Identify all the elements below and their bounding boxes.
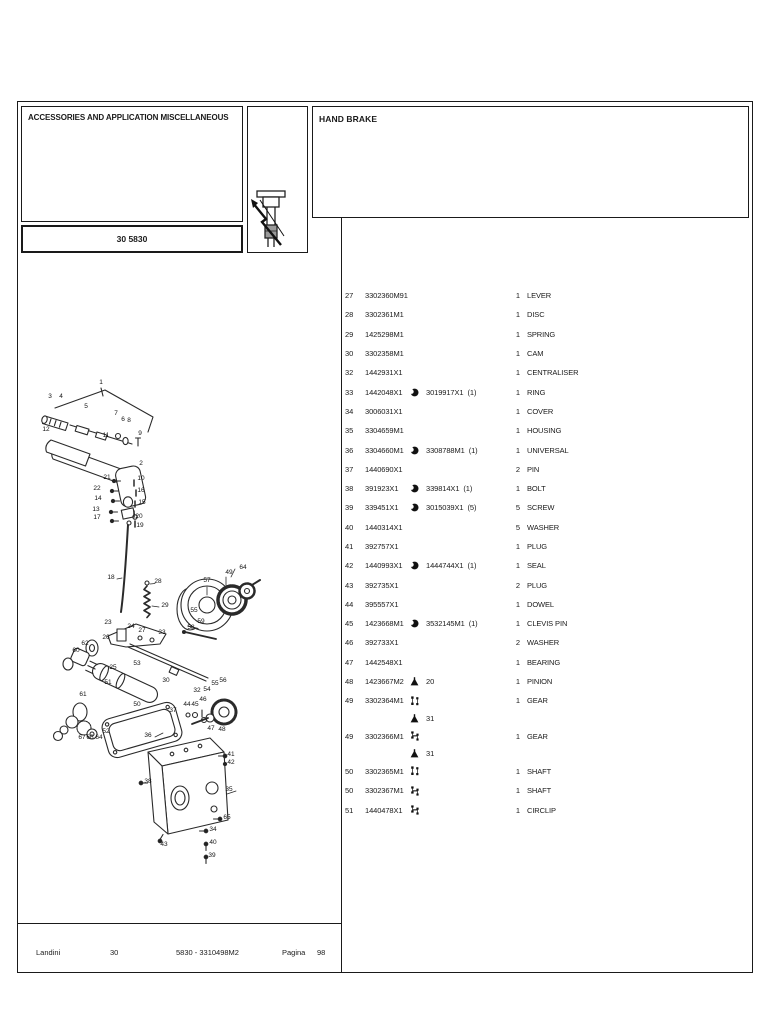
part-row: 28 3302361M1 1 DISC [345, 305, 750, 324]
part-ref: 48 [345, 677, 365, 686]
marker-slot [410, 484, 426, 493]
part-description: GEAR [527, 696, 548, 705]
part-ref: 27 [345, 291, 365, 300]
part-row: 46 392733X1 2 WASHER [345, 633, 750, 652]
diagram-callout-50: 50 [133, 701, 141, 708]
diagram-callout-12: 12 [42, 426, 50, 433]
alt-part-number: 3532145M1 [426, 619, 465, 628]
part-qty: 1 [510, 561, 520, 570]
part-qty: 1 [510, 388, 520, 397]
part-qty: 2 [510, 465, 520, 474]
alt-part-qty: (5) [467, 503, 476, 512]
teeth-count-icon [410, 749, 419, 758]
diagram-callout-8: 8 [127, 417, 131, 424]
part-description: SEAL [527, 561, 546, 570]
alt-part-slot: 20 [426, 677, 510, 686]
footer-divider [17, 923, 341, 924]
part-row: 39 339451X1 3015039X1 (5) 5 SCREW [345, 498, 750, 517]
alt-part-number: 339814X1 [426, 484, 459, 493]
footer-page-number: 98 [317, 948, 325, 957]
part-row: 41 392757X1 1 PLUG [345, 537, 750, 556]
alt-part-qty: (1) [469, 446, 478, 455]
diagram-callout-42: 42 [227, 759, 235, 766]
part-row: 42 1440993X1 1444744X1 (1) 1 SEAL [345, 556, 750, 575]
part-description: UNIVERSAL [527, 446, 569, 455]
diagram-callout-66: 66 [86, 734, 94, 741]
part-number: 1440690X1 [365, 465, 410, 474]
marker-slot [410, 714, 426, 723]
diagram-callout-10: 10 [137, 475, 145, 482]
serial-break-first-icon [410, 766, 420, 776]
part-number: 1440993X1 [365, 561, 410, 570]
part-qty: 1 [510, 330, 520, 339]
panel-divider [341, 217, 342, 973]
diagram-callout-24: 24 [127, 623, 135, 630]
part-ref: 50 [345, 767, 365, 776]
part-description: CAM [527, 349, 543, 358]
part-qty: 1 [510, 767, 520, 776]
footer-model-code: 5830 - 3310498M2 [176, 948, 239, 957]
part-number: 3302361M1 [365, 310, 410, 319]
part-row: 37 1440690X1 2 PIN [345, 460, 750, 479]
parts-list: 27 3302360M91 1 LEVER 28 3302361M1 1 DIS… [345, 286, 750, 820]
diagram-callout-11: 11 [103, 432, 110, 439]
superseded-part-icon [410, 619, 419, 628]
part-number: 3302367M1 [365, 786, 410, 795]
alt-part-number: 31 [426, 714, 434, 723]
part-row: 32 1442931X1 1 CENTRALISER [345, 363, 750, 382]
part-qty: 2 [510, 638, 520, 647]
diagram-callout-53: 53 [133, 660, 141, 667]
part-number: 339451X1 [365, 503, 410, 512]
diagram-callout-52: 52 [102, 728, 110, 735]
diagram-callout-15: 15 [138, 499, 146, 506]
part-description: PIN [527, 465, 539, 474]
superseded-part-icon [410, 446, 419, 455]
diagram-callout-40: 40 [209, 839, 217, 846]
part-description: LEVER [527, 291, 551, 300]
part-qty: 1 [510, 806, 520, 815]
part-qty: 5 [510, 523, 520, 532]
assembly-title: HAND BRAKE [319, 114, 377, 124]
part-qty: 1 [510, 291, 520, 300]
diagram-callout-34: 34 [209, 826, 217, 833]
part-qty: 1 [510, 542, 520, 551]
part-description: SHAFT [527, 786, 551, 795]
part-row: 40 1440314X1 5 WASHER [345, 518, 750, 537]
diagram-callout-23: 23 [104, 619, 112, 626]
marker-slot [410, 446, 426, 455]
diagram-callout-32: 32 [193, 687, 201, 694]
marker-slot [410, 749, 426, 758]
diagram-callout-28: 28 [154, 578, 162, 585]
part-description: WASHER [527, 638, 559, 647]
alt-part-slot: 31 [426, 714, 510, 723]
diagram-callout-14: 14 [94, 495, 102, 502]
part-number: 3302365M1 [365, 767, 410, 776]
footer-section: 30 [110, 948, 118, 957]
part-ref: 35 [345, 426, 365, 435]
diagram-callout-48: 48 [218, 726, 226, 733]
part-ref: 49 [345, 696, 365, 705]
diagram-callout-55: 55 [211, 680, 219, 687]
diagram-callout-46: 46 [199, 696, 207, 703]
diagram-callout-2: 2 [139, 460, 143, 467]
left-title-box: ACCESSORIES AND APPLICATION MISCELLANEOU… [21, 106, 243, 222]
part-row: 51 1440478X1 1 CIRCLIP [345, 800, 750, 819]
part-ref: 49 [345, 732, 365, 741]
part-row: 29 1425298M1 1 SPRING [345, 325, 750, 344]
part-description: PLUG [527, 581, 547, 590]
superseded-part-icon [410, 561, 419, 570]
part-ref: 43 [345, 581, 365, 590]
marker-slot [410, 766, 426, 776]
part-description: GEAR [527, 732, 548, 741]
diagram-callout-67: 67 [78, 734, 86, 741]
diagram-callout-61: 61 [79, 691, 87, 698]
alt-part-qty: (1) [463, 484, 472, 493]
alt-part-qty: (1) [469, 619, 478, 628]
part-number: 391923X1 [365, 484, 410, 493]
part-qty: 2 [510, 581, 520, 590]
part-row: 38 391923X1 339814X1 (1) 1 BOLT [345, 479, 750, 498]
pictogram-box [247, 106, 308, 253]
marker-slot [410, 696, 426, 706]
part-number: 3302364M1 [365, 696, 410, 705]
part-row: 33 1442048X1 3019917X1 (1) 1 RING [345, 382, 750, 401]
footer-brand: Landini [36, 948, 60, 957]
diagram-callout-56: 56 [219, 677, 227, 684]
diagram-callout-64: 64 [95, 734, 103, 741]
part-description: CENTRALISER [527, 368, 578, 377]
part-ref: 30 [345, 349, 365, 358]
marker-slot [410, 677, 426, 686]
diagram-callout-22: 22 [93, 485, 101, 492]
part-row: 45 1423668M1 3532145M1 (1) 1 CLEVIS PIN [345, 614, 750, 633]
marker-slot [410, 619, 426, 628]
marker-slot [410, 503, 426, 512]
part-ref: 42 [345, 561, 365, 570]
part-number: 1442548X1 [365, 658, 410, 667]
diagram-callout-37: 37 [169, 707, 177, 714]
part-qty: 1 [510, 696, 520, 705]
part-qty: 1 [510, 426, 520, 435]
part-ref: 32 [345, 368, 365, 377]
marker-slot [410, 805, 426, 815]
diagram-callout-47: 47 [207, 725, 215, 732]
alt-part-number: 20 [426, 677, 434, 686]
part-description: RING [527, 388, 545, 397]
page-title: ACCESSORIES AND APPLICATION MISCELLANEOU… [28, 113, 229, 122]
part-description: BOLT [527, 484, 546, 493]
alt-part-slot: 31 [426, 749, 510, 758]
diagram-callout-1: 1 [99, 379, 103, 386]
part-description: SCREW [527, 503, 554, 512]
part-number: 3304660M1 [365, 446, 410, 455]
part-row: 43 392735X1 2 PLUG [345, 575, 750, 594]
hand-brake-knob-icon [248, 107, 305, 250]
diagram-callout-21: 21 [103, 474, 111, 481]
diagram-callout-6: 6 [121, 416, 125, 423]
part-qty: 1 [510, 600, 520, 609]
teeth-count-icon [410, 677, 419, 686]
exploded-diagram: 1345768912112211022161415132017191828295… [20, 260, 340, 920]
part-qty: 1 [510, 407, 520, 416]
alt-part-slot: 3015039X1 (5) [426, 503, 510, 512]
part-row: 31 [345, 711, 750, 727]
part-ref: 36 [345, 446, 365, 455]
part-description: COVER [527, 407, 553, 416]
diagram-callout-55: 55 [190, 607, 198, 614]
part-qty: 1 [510, 619, 520, 628]
serial-break-second-icon [410, 786, 420, 796]
diagram-callout-17: 17 [93, 514, 101, 521]
part-ref: 51 [345, 806, 365, 815]
diagram-callout-59: 59 [197, 618, 205, 625]
part-number: 3302358M1 [365, 349, 410, 358]
diagram-callout-7: 7 [114, 410, 118, 417]
part-number: 1440314X1 [365, 523, 410, 532]
alt-part-number: 3019917X1 [426, 388, 463, 397]
diagram-callout-26: 26 [102, 634, 110, 641]
part-number: 1425298M1 [365, 330, 410, 339]
part-row: 30 3302358M1 1 CAM [345, 344, 750, 363]
alt-part-slot: 3532145M1 (1) [426, 619, 510, 628]
part-number: 1442048X1 [365, 388, 410, 397]
superseded-part-icon [410, 484, 419, 493]
diagram-callout-19: 19 [136, 522, 144, 529]
part-row: 49 3302364M1 1 GEAR [345, 691, 750, 710]
diagram-callout-18: 18 [107, 574, 115, 581]
part-description: PLUG [527, 542, 547, 551]
part-number: 1423667M2 [365, 677, 410, 686]
part-description: HOUSING [527, 426, 561, 435]
right-title-box: HAND BRAKE [312, 106, 749, 218]
alt-part-number: 3015039X1 [426, 503, 463, 512]
diagram-callout-51: 51 [104, 679, 112, 686]
part-ref: 39 [345, 503, 365, 512]
diagram-callout-45: 45 [191, 701, 199, 708]
alt-part-qty: (1) [467, 388, 476, 397]
alt-part-slot: 3019917X1 (1) [426, 388, 510, 397]
part-number: 3006031X1 [365, 407, 410, 416]
diagram-callout-54: 54 [203, 686, 211, 693]
part-row: 44 395557X1 1 DOWEL [345, 595, 750, 614]
superseded-part-icon [410, 503, 419, 512]
diagram-callout-39: 39 [208, 852, 216, 859]
part-description: WASHER [527, 523, 559, 532]
part-qty: 1 [510, 786, 520, 795]
part-number: 392733X1 [365, 638, 410, 647]
part-description: BEARING [527, 658, 560, 667]
part-description: DOWEL [527, 600, 554, 609]
part-description: SPRING [527, 330, 555, 339]
part-row: 48 1423667M2 20 1 PINION [345, 672, 750, 691]
section-code: 30 5830 [23, 234, 241, 244]
part-number: 1440478X1 [365, 806, 410, 815]
alt-part-slot: 3308788M1 (1) [426, 446, 510, 455]
alt-part-number: 31 [426, 749, 434, 758]
diagram-callout-43: 43 [160, 841, 168, 848]
part-row: 47 1442548X1 1 BEARING [345, 653, 750, 672]
diagram-callout-33: 33 [158, 629, 166, 636]
part-ref: 46 [345, 638, 365, 647]
part-row: 27 3302360M91 1 LEVER [345, 286, 750, 305]
diagram-callout-62: 62 [81, 640, 89, 647]
alt-part-slot: 1444744X1 (1) [426, 561, 510, 570]
part-ref: 28 [345, 310, 365, 319]
part-row: 49 3302366M1 1 GEAR [345, 727, 750, 746]
part-row: 50 3302367M1 1 SHAFT [345, 781, 750, 800]
diagram-callout-65: 65 [223, 814, 231, 821]
part-row: 50 3302365M1 1 SHAFT [345, 762, 750, 781]
part-ref: 40 [345, 523, 365, 532]
diagram-callout-49: 49 [225, 569, 233, 576]
part-number: 3302360M91 [365, 291, 410, 300]
part-number: 395557X1 [365, 600, 410, 609]
alt-part-number: 3308788M1 [426, 446, 465, 455]
diagram-callout-60: 60 [72, 647, 80, 654]
part-qty: 1 [510, 732, 520, 741]
part-row: 35 3304659M1 1 HOUSING [345, 421, 750, 440]
part-qty: 5 [510, 503, 520, 512]
part-description: SHAFT [527, 767, 551, 776]
part-ref: 33 [345, 388, 365, 397]
part-row: 31 [345, 746, 750, 762]
part-number: 3302366M1 [365, 732, 410, 741]
diagram-callout-27: 27 [138, 627, 146, 634]
part-ref: 34 [345, 407, 365, 416]
teeth-count-icon [410, 714, 419, 723]
serial-break-first-icon [410, 696, 420, 706]
diagram-callout-13: 13 [92, 506, 100, 513]
footer-page-label: Pagina [282, 948, 305, 957]
diagram-callout-57: 57 [203, 577, 211, 584]
part-ref: 37 [345, 465, 365, 474]
diagram-callout-20: 20 [135, 513, 143, 520]
serial-break-second-icon [410, 731, 420, 741]
part-qty: 1 [510, 677, 520, 686]
diagram-callout-3: 3 [48, 393, 52, 400]
diagram-callout-9: 9 [138, 430, 142, 437]
part-qty: 1 [510, 349, 520, 358]
serial-break-second-icon [410, 805, 420, 815]
diagram-callout-58: 58 [187, 624, 195, 631]
diagram-callout-44: 44 [183, 701, 191, 708]
part-row: 34 3006031X1 1 COVER [345, 402, 750, 421]
diagram-callout-16: 16 [137, 487, 145, 494]
diagram-callout-4: 4 [59, 393, 63, 400]
alt-part-number: 1444744X1 [426, 561, 463, 570]
part-description: CLEVIS PIN [527, 619, 567, 628]
alt-part-slot: 339814X1 (1) [426, 484, 510, 493]
diagram-callout-36: 36 [144, 732, 152, 739]
part-number: 392757X1 [365, 542, 410, 551]
alt-part-qty: (1) [467, 561, 476, 570]
diagram-callout-38: 38 [144, 778, 152, 785]
part-qty: 1 [510, 658, 520, 667]
diagram-callout-25: 25 [109, 664, 117, 671]
part-qty: 1 [510, 484, 520, 493]
part-ref: 47 [345, 658, 365, 667]
catalog-page: { "palette": { "ink": "#1a1a1a", "paper"… [0, 0, 768, 1024]
part-ref: 38 [345, 484, 365, 493]
part-qty: 1 [510, 368, 520, 377]
section-code-box: 30 5830 [21, 225, 243, 253]
part-description: CIRCLIP [527, 806, 556, 815]
part-number: 1423668M1 [365, 619, 410, 628]
diagram-callout-41: 41 [227, 751, 235, 758]
marker-slot [410, 786, 426, 796]
part-number: 1442931X1 [365, 368, 410, 377]
superseded-part-icon [410, 388, 419, 397]
part-qty: 1 [510, 446, 520, 455]
diagram-callout-29: 29 [161, 602, 169, 609]
part-ref: 45 [345, 619, 365, 628]
part-description: DISC [527, 310, 545, 319]
marker-slot [410, 561, 426, 570]
part-ref: 41 [345, 542, 365, 551]
diagram-callout-35: 35 [225, 786, 233, 793]
diagram-callout-30: 30 [162, 677, 170, 684]
part-qty: 1 [510, 310, 520, 319]
part-row: 36 3304660M1 3308788M1 (1) 1 UNIVERSAL [345, 440, 750, 459]
marker-slot [410, 388, 426, 397]
part-ref: 50 [345, 786, 365, 795]
part-ref: 44 [345, 600, 365, 609]
diagram-callout-5: 5 [84, 403, 88, 410]
part-ref: 29 [345, 330, 365, 339]
part-description: PINION [527, 677, 552, 686]
part-number: 392735X1 [365, 581, 410, 590]
marker-slot [410, 731, 426, 741]
part-number: 3304659M1 [365, 426, 410, 435]
diagram-callout-64: 64 [239, 564, 247, 571]
